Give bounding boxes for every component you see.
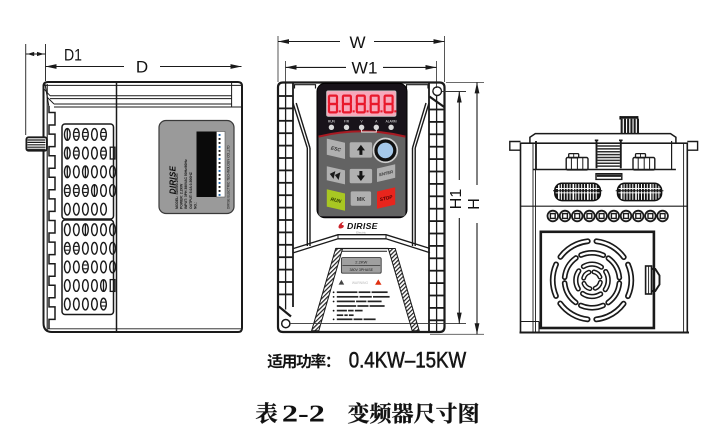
svg-text:Electric: Electric bbox=[356, 230, 366, 234]
svg-text:POWER: 2.2KW: POWER: 2.2KW bbox=[180, 183, 184, 209]
svg-text:WARNING: WARNING bbox=[352, 281, 369, 285]
svg-text:MODEL: SDI500-2R2G: MODEL: SDI500-2R2G bbox=[175, 173, 179, 209]
svg-text:OUTPUT: 5.0A 0-500HZ: OUTPUT: 5.0A 0-500HZ bbox=[189, 172, 193, 209]
svg-text:W: W bbox=[349, 33, 365, 52]
svg-text:D1: D1 bbox=[64, 46, 82, 65]
svg-text:0.4KW–15KW: 0.4KW–15KW bbox=[349, 348, 467, 373]
svg-text:D: D bbox=[136, 58, 148, 77]
svg-text:H1: H1 bbox=[448, 189, 465, 210]
svg-text:W1: W1 bbox=[352, 59, 378, 78]
svg-text:NO.:: NO.: bbox=[193, 202, 197, 209]
svg-text:INPUT: 3PH 380VAC 50Hz/60Hz: INPUT: 3PH 380VAC 50Hz/60Hz bbox=[184, 159, 188, 209]
svg-text:F/R: F/R bbox=[344, 120, 350, 124]
svg-text:H: H bbox=[466, 198, 483, 210]
svg-text:2.2KW: 2.2KW bbox=[355, 259, 367, 264]
svg-text:RUN: RUN bbox=[328, 120, 336, 124]
svg-text:ALARM: ALARM bbox=[386, 120, 397, 124]
svg-text:380V 3PHASE: 380V 3PHASE bbox=[350, 268, 374, 272]
svg-text:DIRISE ELECTRIC TECHNOLOGY CO.: DIRISE ELECTRIC TECHNOLOGY CO.,LTD bbox=[227, 145, 231, 209]
svg-text:MK: MK bbox=[357, 197, 365, 203]
svg-text:2-2: 2-2 bbox=[282, 402, 325, 428]
